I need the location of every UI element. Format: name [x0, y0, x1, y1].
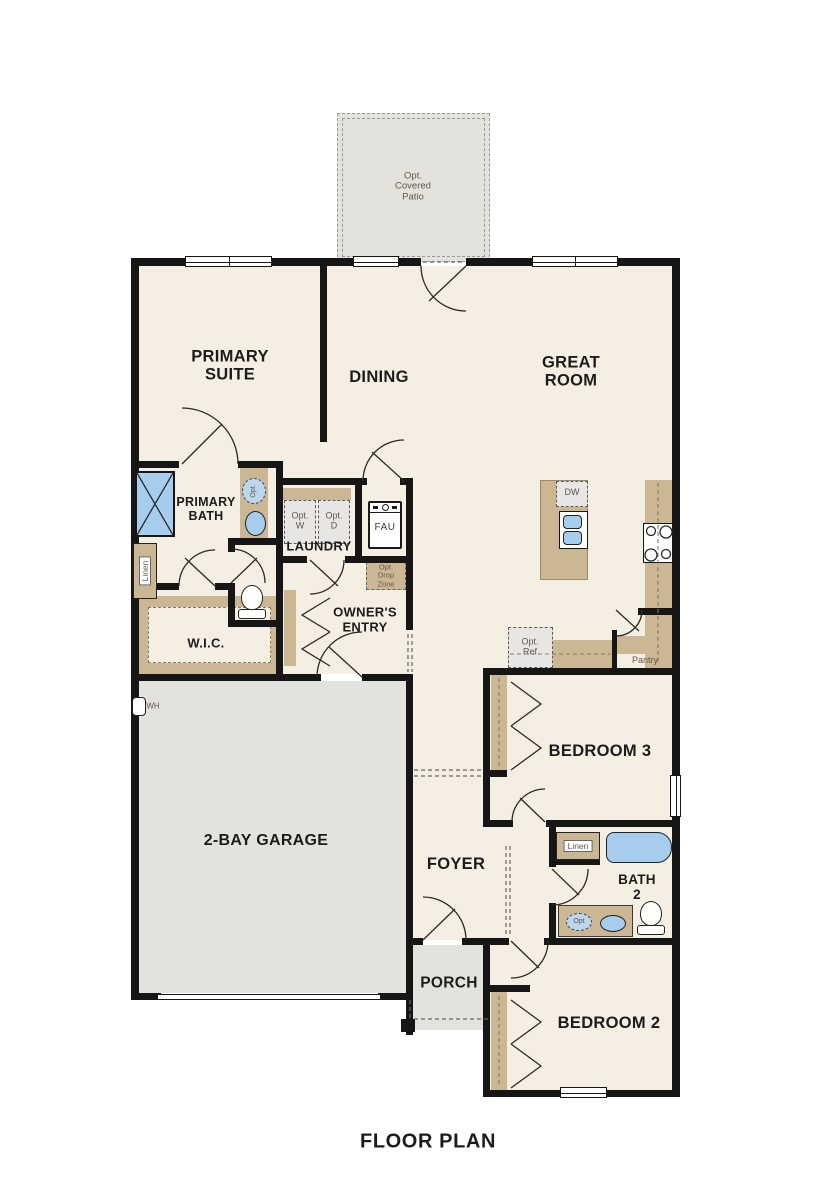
- wall-bath2-left-lower: [549, 903, 556, 940]
- window-bedroom3: [670, 775, 681, 817]
- wall-right: [672, 258, 680, 1097]
- opt-washer-label: Opt. W: [291, 511, 308, 530]
- fau-dial-icon: [382, 504, 389, 511]
- wall-bedroom3-bottom-left: [483, 820, 513, 827]
- wall-toilet-top: [228, 538, 283, 545]
- wall-bedroom3-bottom-right: [546, 820, 680, 827]
- wall-toilet-bottom: [228, 620, 283, 627]
- bathtub: [606, 832, 672, 863]
- wic-label: W.I.C.: [187, 637, 224, 652]
- garage-door: [158, 994, 380, 1000]
- laundry-label: LAUNDRY: [286, 540, 351, 555]
- drawing-title: FLOOR PLAN: [360, 1131, 496, 1154]
- wall-bath-top-right: [238, 461, 278, 468]
- owners-entry-label: OWNER'S ENTRY: [333, 605, 397, 634]
- porch-post: [401, 1019, 415, 1032]
- wall-garage-top-left: [131, 674, 321, 681]
- wall-bath2-bedroom2: [544, 938, 680, 945]
- laundry-counter: [283, 488, 351, 500]
- fau-panel: [370, 503, 400, 513]
- linen-primary-label: Linen: [139, 557, 151, 586]
- bedroom3-label: BEDROOM 3: [549, 742, 652, 760]
- fau-unit: FAU: [368, 501, 402, 549]
- island-sink: [559, 511, 588, 549]
- water-heater: [132, 697, 146, 716]
- toilet-bath2-base: [637, 925, 665, 935]
- toilet-primary-bowl: [241, 585, 263, 610]
- bath2-label: BATH 2: [618, 872, 656, 902]
- pantry-shelf: [617, 636, 672, 654]
- window-great-room: [532, 256, 618, 267]
- bedroom2-label: BEDROOM 2: [558, 1014, 661, 1032]
- wall-garage-bottom-right: [378, 993, 413, 1000]
- water-heater-label: WH: [146, 703, 159, 712]
- wall-laundry-top: [283, 478, 355, 485]
- toilet-bath2-bowl: [640, 901, 662, 926]
- cooktop: [643, 523, 673, 563]
- opt-sink-bath2-label: Opt: [573, 918, 584, 926]
- window-dining: [353, 256, 399, 267]
- hall-floor: [413, 674, 490, 940]
- sink-basin: [563, 531, 582, 545]
- wall-toilet-left-upper: [228, 538, 235, 552]
- dishwasher-label: DW: [565, 488, 580, 498]
- fau-vent-icon: [392, 506, 397, 509]
- opt-drop-zone-label: Opt. Drop Zone: [377, 564, 394, 589]
- opt-refrigerator-label: Opt. Ref: [521, 637, 538, 656]
- wall-garage-right: [406, 674, 413, 1035]
- window-primary-suite: [185, 256, 272, 267]
- wall-left: [131, 258, 139, 1000]
- wall-garage-bottom-left: [131, 993, 161, 1000]
- sink-basin: [563, 515, 582, 529]
- primary-bath-label: PRIMARY BATH: [176, 495, 235, 523]
- wall-bath-top-left: [131, 461, 179, 468]
- sink-bath2: [600, 915, 626, 932]
- linen-bath2-label: Linen: [564, 840, 593, 852]
- foyer-label: FOYER: [427, 855, 485, 873]
- great-room-label: GREAT ROOM: [542, 354, 600, 391]
- wall-pantry-top: [638, 608, 673, 615]
- wall-bedroom3-hall: [483, 668, 490, 827]
- fau-label: FAU: [370, 522, 400, 533]
- wall-kitchen-bedroom3: [483, 668, 680, 675]
- wall-suite-dining: [320, 266, 327, 442]
- sink-primary: [245, 511, 266, 536]
- wall-bedroom2-closet-top: [488, 985, 530, 992]
- wall-bedroom2-west: [483, 938, 490, 1097]
- window-bedroom2: [560, 1087, 607, 1098]
- shower: [135, 471, 175, 537]
- toilet-primary-base: [238, 609, 266, 619]
- porch-label: PORCH: [420, 974, 477, 991]
- wall-foyer-front-left: [406, 938, 423, 945]
- opt-dryer-label: Opt. D: [325, 511, 342, 530]
- wall-laundry-fau: [355, 478, 362, 563]
- wall-bath-laundry: [276, 461, 283, 677]
- bedroom3-closet-shelf: [491, 675, 507, 775]
- dining-label: DINING: [349, 368, 409, 386]
- kitchen-counter-bottom: [553, 640, 612, 668]
- owners-entry-closet-shelf: [284, 590, 296, 666]
- wall-laundry-bottom-left: [283, 556, 307, 563]
- floor-plan: FAU: [0, 0, 833, 1202]
- primary-suite-label: PRIMARY SUITE: [191, 348, 269, 385]
- pantry-label: Pantry: [632, 656, 658, 666]
- opt-sink-primary-label: Opt.: [250, 484, 258, 497]
- opt-covered-patio-label: Opt. Covered Patio: [395, 172, 431, 203]
- wall-hall-left-upper: [406, 478, 413, 630]
- fau-vent-icon: [373, 506, 378, 509]
- garage-label: 2-BAY GARAGE: [204, 832, 329, 850]
- wall-bedroom3-closet-stub: [488, 770, 507, 777]
- wall-pantry-left: [612, 630, 617, 670]
- bedroom2-closet-shelf: [491, 992, 507, 1090]
